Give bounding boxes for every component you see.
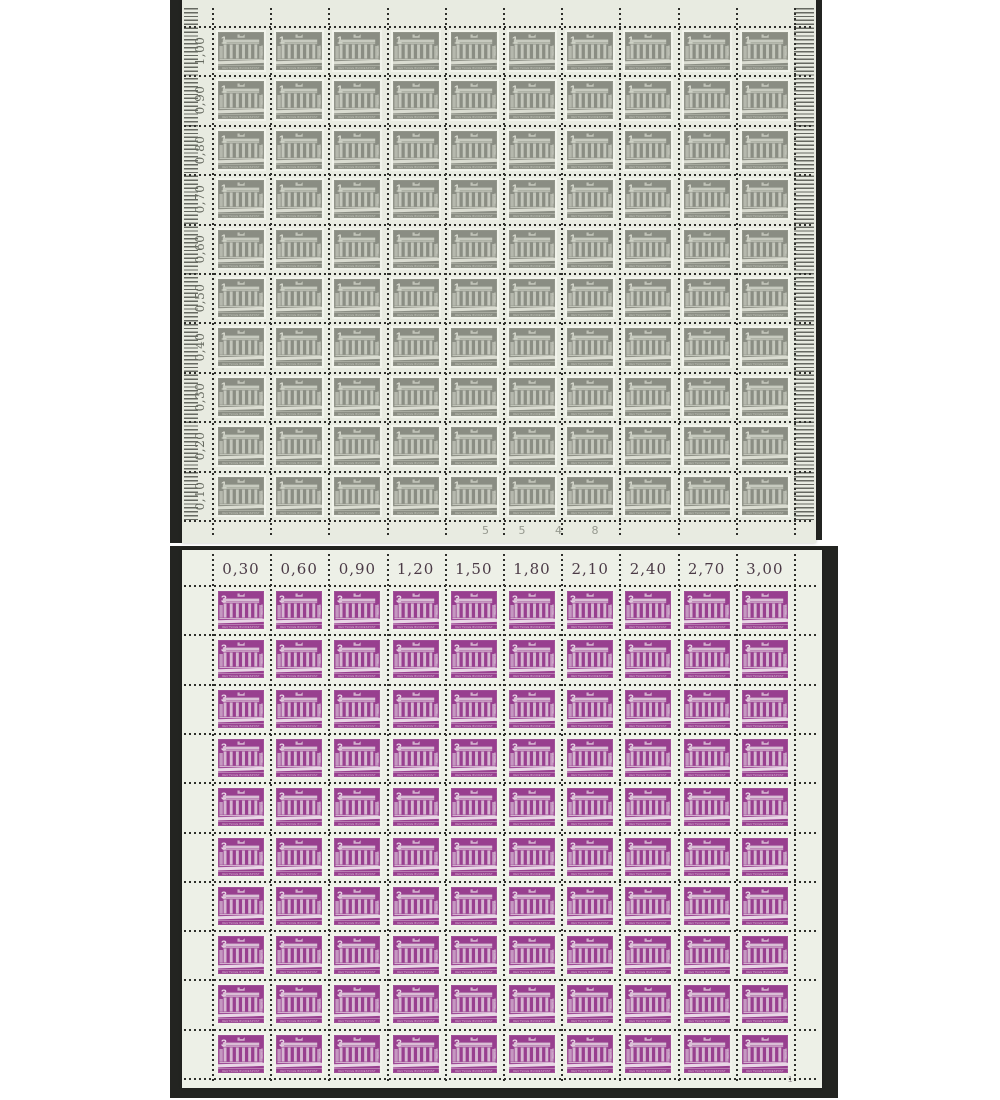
svg-text:BERLIN: BERLIN [725, 292, 729, 302]
stamp-1pf-grey: 1DEUTSCHE BUNDESPOSTBERLIN [391, 79, 441, 121]
svg-text:BERLIN: BERLIN [376, 243, 380, 253]
svg-text:DEUTSCHE BUNDESPOST: DEUTSCHE BUNDESPOST [455, 872, 493, 876]
svg-text:DEUTSCHE BUNDESPOST: DEUTSCHE BUNDESPOST [222, 1069, 260, 1073]
stamp-3pf-purple: 3DEUTSCHE BUNDESPOSTBERLIN [565, 983, 615, 1025]
svg-text:BERLIN: BERLIN [725, 441, 729, 451]
stamp-3pf-purple: 3DEUTSCHE BUNDESPOSTBERLIN [682, 638, 732, 680]
svg-text:BERLIN: BERLIN [784, 194, 788, 204]
svg-text:BERLIN: BERLIN [434, 752, 438, 762]
stamp-1pf-grey: 1DEUTSCHE BUNDESPOSTBERLIN [216, 30, 266, 72]
stamp-1pf-grey: 1DEUTSCHE BUNDESPOSTBERLIN [391, 277, 441, 319]
stamp-1pf-grey: 1DEUTSCHE BUNDESPOSTBERLIN [449, 376, 499, 418]
stamp-1pf-grey: 1DEUTSCHE BUNDESPOSTBERLIN [216, 326, 266, 368]
svg-text:BERLIN: BERLIN [725, 851, 729, 861]
svg-text:BERLIN: BERLIN [725, 45, 729, 55]
svg-text:BERLIN: BERLIN [667, 243, 671, 253]
svg-text:BERLIN: BERLIN [551, 95, 555, 105]
svg-text:DEUTSCHE BUNDESPOST: DEUTSCHE BUNDESPOST [280, 970, 318, 974]
svg-text:BERLIN: BERLIN [784, 900, 788, 910]
svg-text:BERLIN: BERLIN [376, 45, 380, 55]
svg-text:BERLIN: BERLIN [725, 703, 729, 713]
svg-text:DEUTSCHE BUNDESPOST: DEUTSCHE BUNDESPOST [280, 214, 318, 218]
svg-text:DEUTSCHE BUNDESPOST: DEUTSCHE BUNDESPOST [571, 214, 609, 218]
stamp-3pf-purple: 3DEUTSCHE BUNDESPOSTBERLIN [682, 589, 732, 631]
svg-text:BERLIN: BERLIN [609, 95, 613, 105]
svg-text:BERLIN: BERLIN [493, 900, 497, 910]
svg-text:DEUTSCHE BUNDESPOST: DEUTSCHE BUNDESPOST [397, 115, 435, 119]
svg-text:BERLIN: BERLIN [784, 654, 788, 664]
svg-text:BERLIN: BERLIN [725, 900, 729, 910]
svg-text:BERLIN: BERLIN [725, 95, 729, 105]
stamp-3pf-purple: 3DEUTSCHE BUNDESPOSTBERLIN [449, 688, 499, 730]
stamp-3pf-purple: 3DEUTSCHE BUNDESPOSTBERLIN [740, 983, 790, 1025]
stamp-3pf-purple: 3DEUTSCHE BUNDESPOSTBERLIN [682, 885, 732, 927]
svg-text:BERLIN: BERLIN [434, 342, 438, 352]
svg-text:BERLIN: BERLIN [493, 490, 497, 500]
stamp-3pf-purple: 3DEUTSCHE BUNDESPOSTBERLIN [507, 983, 557, 1025]
perforation-line [184, 421, 814, 423]
svg-text:DEUTSCHE BUNDESPOST: DEUTSCHE BUNDESPOST [513, 511, 551, 515]
svg-text:DEUTSCHE BUNDESPOST: DEUTSCHE BUNDESPOST [397, 461, 435, 465]
stamp-1pf-grey: 1DEUTSCHE BUNDESPOSTBERLIN [332, 277, 382, 319]
row-value-label: 0,70 [193, 182, 207, 216]
svg-text:DEUTSCHE BUNDESPOST: DEUTSCHE BUNDESPOST [688, 921, 726, 925]
svg-text:BERLIN: BERLIN [493, 292, 497, 302]
svg-text:DEUTSCHE BUNDESPOST: DEUTSCHE BUNDESPOST [630, 921, 668, 925]
svg-text:DEUTSCHE BUNDESPOST: DEUTSCHE BUNDESPOST [222, 970, 260, 974]
stamp-1pf-grey: 1DEUTSCHE BUNDESPOSTBERLIN [216, 129, 266, 171]
svg-text:DEUTSCHE BUNDESPOST: DEUTSCHE BUNDESPOST [571, 822, 609, 826]
stamp-1pf-grey: 1DEUTSCHE BUNDESPOSTBERLIN [565, 228, 615, 270]
svg-text:DEUTSCHE BUNDESPOST: DEUTSCHE BUNDESPOST [746, 872, 784, 876]
stamp-1pf-grey: 1DEUTSCHE BUNDESPOSTBERLIN [507, 277, 557, 319]
svg-text:BERLIN: BERLIN [493, 604, 497, 614]
svg-text:BERLIN: BERLIN [493, 703, 497, 713]
svg-text:BERLIN: BERLIN [551, 949, 555, 959]
svg-text:BERLIN: BERLIN [260, 654, 264, 664]
column-value-label: 2,10 [561, 560, 619, 578]
svg-text:DEUTSCHE BUNDESPOST: DEUTSCHE BUNDESPOST [222, 165, 260, 169]
stamp-3pf-purple: 3DEUTSCHE BUNDESPOSTBERLIN [391, 638, 441, 680]
svg-text:BERLIN: BERLIN [493, 752, 497, 762]
stamp-3pf-purple: 3DEUTSCHE BUNDESPOSTBERLIN [391, 934, 441, 976]
svg-text:BERLIN: BERLIN [667, 752, 671, 762]
svg-text:BERLIN: BERLIN [551, 292, 555, 302]
svg-text:DEUTSCHE BUNDESPOST: DEUTSCHE BUNDESPOST [455, 773, 493, 777]
svg-text:BERLIN: BERLIN [609, 604, 613, 614]
stamp-3pf-purple: 3DEUTSCHE BUNDESPOSTBERLIN [449, 786, 499, 828]
stamp-3pf-purple: 3DEUTSCHE BUNDESPOSTBERLIN [216, 638, 266, 680]
svg-text:BERLIN: BERLIN [376, 999, 380, 1009]
svg-text:BERLIN: BERLIN [609, 752, 613, 762]
stamp-3pf-purple: 3DEUTSCHE BUNDESPOSTBERLIN [507, 589, 557, 631]
svg-text:DEUTSCHE BUNDESPOST: DEUTSCHE BUNDESPOST [339, 115, 377, 119]
stamp-3pf-purple: 3DEUTSCHE BUNDESPOSTBERLIN [274, 737, 324, 779]
svg-text:DEUTSCHE BUNDESPOST: DEUTSCHE BUNDESPOST [339, 362, 377, 366]
svg-text:DEUTSCHE BUNDESPOST: DEUTSCHE BUNDESPOST [630, 214, 668, 218]
stamp-1pf-grey: 1DEUTSCHE BUNDESPOSTBERLIN [623, 425, 673, 467]
row-value-label: 0,30 [193, 380, 207, 414]
perforation-line [328, 554, 330, 1082]
svg-text:BERLIN: BERLIN [434, 441, 438, 451]
stamp-3pf-purple: 3DEUTSCHE BUNDESPOSTBERLIN [216, 934, 266, 976]
svg-text:DEUTSCHE BUNDESPOST: DEUTSCHE BUNDESPOST [630, 724, 668, 728]
stamp-1pf-grey: 1DEUTSCHE BUNDESPOSTBERLIN [274, 376, 324, 418]
svg-text:DEUTSCHE BUNDESPOST: DEUTSCHE BUNDESPOST [571, 461, 609, 465]
stamp-3pf-purple: 3DEUTSCHE BUNDESPOSTBERLIN [740, 638, 790, 680]
svg-text:DEUTSCHE BUNDESPOST: DEUTSCHE BUNDESPOST [222, 625, 260, 629]
svg-text:DEUTSCHE BUNDESPOST: DEUTSCHE BUNDESPOST [513, 970, 551, 974]
svg-text:DEUTSCHE BUNDESPOST: DEUTSCHE BUNDESPOST [571, 773, 609, 777]
stamp-1pf-grey: 1DEUTSCHE BUNDESPOSTBERLIN [623, 376, 673, 418]
stamp-3pf-purple: 3DEUTSCHE BUNDESPOSTBERLIN [507, 786, 557, 828]
stamp-1pf-grey: 1DEUTSCHE BUNDESPOSTBERLIN [623, 79, 673, 121]
stamp-1pf-grey: 1DEUTSCHE BUNDESPOSTBERLIN [682, 30, 732, 72]
stamp-3pf-purple: 3DEUTSCHE BUNDESPOSTBERLIN [623, 885, 673, 927]
stamp-3pf-purple: 3DEUTSCHE BUNDESPOSTBERLIN [391, 786, 441, 828]
stamp-3pf-purple: 3DEUTSCHE BUNDESPOSTBERLIN [449, 885, 499, 927]
stamp-1pf-grey: 1DEUTSCHE BUNDESPOSTBERLIN [740, 326, 790, 368]
stamp-1pf-grey: 1DEUTSCHE BUNDESPOSTBERLIN [216, 178, 266, 220]
svg-text:BERLIN: BERLIN [260, 999, 264, 1009]
stamp-1pf-grey: 1DEUTSCHE BUNDESPOSTBERLIN [391, 178, 441, 220]
svg-text:DEUTSCHE BUNDESPOST: DEUTSCHE BUNDESPOST [746, 970, 784, 974]
svg-text:BERLIN: BERLIN [493, 851, 497, 861]
svg-text:BERLIN: BERLIN [609, 1048, 613, 1058]
stamp-3pf-purple: 3DEUTSCHE BUNDESPOSTBERLIN [332, 737, 382, 779]
stamp-3pf-purple: 3DEUTSCHE BUNDESPOSTBERLIN [274, 983, 324, 1025]
column-value-label: 2,40 [619, 560, 677, 578]
stamp-1pf-grey: 1DEUTSCHE BUNDESPOSTBERLIN [623, 228, 673, 270]
stamp-1pf-grey: 1DEUTSCHE BUNDESPOSTBERLIN [332, 376, 382, 418]
svg-text:DEUTSCHE BUNDESPOST: DEUTSCHE BUNDESPOST [455, 362, 493, 366]
svg-text:DEUTSCHE BUNDESPOST: DEUTSCHE BUNDESPOST [339, 461, 377, 465]
svg-text:DEUTSCHE BUNDESPOST: DEUTSCHE BUNDESPOST [688, 773, 726, 777]
svg-text:DEUTSCHE BUNDESPOST: DEUTSCHE BUNDESPOST [339, 1069, 377, 1073]
stamp-3pf-purple: 3DEUTSCHE BUNDESPOSTBERLIN [449, 737, 499, 779]
svg-text:DEUTSCHE BUNDESPOST: DEUTSCHE BUNDESPOST [746, 724, 784, 728]
svg-text:BERLIN: BERLIN [434, 900, 438, 910]
svg-text:DEUTSCHE BUNDESPOST: DEUTSCHE BUNDESPOST [339, 970, 377, 974]
svg-text:BERLIN: BERLIN [667, 45, 671, 55]
stamp-3pf-purple: 3DEUTSCHE BUNDESPOSTBERLIN [565, 786, 615, 828]
stamp-3pf-purple: 3DEUTSCHE BUNDESPOSTBERLIN [274, 786, 324, 828]
stamp-3pf-purple: 3DEUTSCHE BUNDESPOSTBERLIN [740, 589, 790, 631]
svg-text:DEUTSCHE BUNDESPOST: DEUTSCHE BUNDESPOST [280, 412, 318, 416]
svg-text:DEUTSCHE BUNDESPOST: DEUTSCHE BUNDESPOST [339, 921, 377, 925]
perforation-line [387, 8, 389, 536]
svg-text:BERLIN: BERLIN [551, 441, 555, 451]
svg-text:BERLIN: BERLIN [784, 292, 788, 302]
perforation-line [184, 684, 818, 686]
svg-text:DEUTSCHE BUNDESPOST: DEUTSCHE BUNDESPOST [339, 1019, 377, 1023]
svg-text:BERLIN: BERLIN [784, 802, 788, 812]
column-value-label: 3,00 [736, 560, 794, 578]
stamp-1pf-grey: 1DEUTSCHE BUNDESPOSTBERLIN [391, 326, 441, 368]
svg-text:DEUTSCHE BUNDESPOST: DEUTSCHE BUNDESPOST [339, 313, 377, 317]
stamp-1pf-grey: 1DEUTSCHE BUNDESPOSTBERLIN [449, 277, 499, 319]
svg-text:BERLIN: BERLIN [318, 604, 322, 614]
svg-text:BERLIN: BERLIN [434, 604, 438, 614]
svg-text:DEUTSCHE BUNDESPOST: DEUTSCHE BUNDESPOST [222, 362, 260, 366]
stamp-3pf-purple: 3DEUTSCHE BUNDESPOSTBERLIN [623, 688, 673, 730]
svg-text:DEUTSCHE BUNDESPOST: DEUTSCHE BUNDESPOST [630, 511, 668, 515]
svg-text:BERLIN: BERLIN [667, 949, 671, 959]
svg-text:DEUTSCHE BUNDESPOST: DEUTSCHE BUNDESPOST [688, 625, 726, 629]
perforation-line [184, 125, 814, 127]
svg-text:DEUTSCHE BUNDESPOST: DEUTSCHE BUNDESPOST [222, 511, 260, 515]
perforation-line [184, 881, 818, 883]
svg-text:DEUTSCHE BUNDESPOST: DEUTSCHE BUNDESPOST [397, 625, 435, 629]
svg-text:BERLIN: BERLIN [667, 292, 671, 302]
svg-text:BERLIN: BERLIN [493, 1048, 497, 1058]
svg-text:BERLIN: BERLIN [609, 441, 613, 451]
stamp-1pf-grey: 1DEUTSCHE BUNDESPOSTBERLIN [507, 178, 557, 220]
stamp-3pf-purple: 3DEUTSCHE BUNDESPOSTBERLIN [565, 688, 615, 730]
svg-text:BERLIN: BERLIN [376, 441, 380, 451]
svg-text:BERLIN: BERLIN [725, 1048, 729, 1058]
svg-text:DEUTSCHE BUNDESPOST: DEUTSCHE BUNDESPOST [746, 115, 784, 119]
stamp-1pf-grey: 1DEUTSCHE BUNDESPOSTBERLIN [449, 79, 499, 121]
perforation-line [184, 372, 814, 374]
stamp-3pf-purple: 3DEUTSCHE BUNDESPOSTBERLIN [565, 737, 615, 779]
stamp-3pf-purple: 3DEUTSCHE BUNDESPOSTBERLIN [216, 688, 266, 730]
perforation-line [503, 554, 505, 1082]
svg-text:DEUTSCHE BUNDESPOST: DEUTSCHE BUNDESPOST [746, 625, 784, 629]
stamp-3pf-purple: 3DEUTSCHE BUNDESPOSTBERLIN [216, 885, 266, 927]
svg-text:DEUTSCHE BUNDESPOST: DEUTSCHE BUNDESPOST [222, 66, 260, 70]
svg-text:DEUTSCHE BUNDESPOST: DEUTSCHE BUNDESPOST [513, 461, 551, 465]
svg-text:BERLIN: BERLIN [318, 1048, 322, 1058]
svg-text:BERLIN: BERLIN [493, 243, 497, 253]
stamp-3pf-purple: 3DEUTSCHE BUNDESPOSTBERLIN [449, 1033, 499, 1075]
svg-text:DEUTSCHE BUNDESPOST: DEUTSCHE BUNDESPOST [571, 625, 609, 629]
column-value-label: 2,70 [678, 560, 736, 578]
svg-text:DEUTSCHE BUNDESPOST: DEUTSCHE BUNDESPOST [397, 362, 435, 366]
svg-text:BERLIN: BERLIN [609, 654, 613, 664]
svg-text:BERLIN: BERLIN [318, 999, 322, 1009]
stamp-1pf-grey: 1DEUTSCHE BUNDESPOSTBERLIN [274, 228, 324, 270]
stamp-1pf-grey: 1DEUTSCHE BUNDESPOSTBERLIN [274, 277, 324, 319]
svg-text:BERLIN: BERLIN [609, 703, 613, 713]
svg-text:BERLIN: BERLIN [434, 851, 438, 861]
row-value-label: 0,90 [193, 83, 207, 117]
stamp-1pf-grey: 1DEUTSCHE BUNDESPOSTBERLIN [682, 129, 732, 171]
stamp-1pf-grey: 1DEUTSCHE BUNDESPOSTBERLIN [507, 79, 557, 121]
svg-text:DEUTSCHE BUNDESPOST: DEUTSCHE BUNDESPOST [688, 724, 726, 728]
stamp-1pf-grey: 1DEUTSCHE BUNDESPOSTBERLIN [623, 129, 673, 171]
svg-text:BERLIN: BERLIN [434, 391, 438, 401]
svg-text:BERLIN: BERLIN [318, 342, 322, 352]
stamp-1pf-grey: 1DEUTSCHE BUNDESPOSTBERLIN [682, 425, 732, 467]
svg-text:BERLIN: BERLIN [318, 45, 322, 55]
stamp-3pf-purple: 3DEUTSCHE BUNDESPOSTBERLIN [740, 934, 790, 976]
stamp-3pf-purple: 3DEUTSCHE BUNDESPOSTBERLIN [391, 1033, 441, 1075]
svg-text:BERLIN: BERLIN [318, 144, 322, 154]
svg-text:BERLIN: BERLIN [551, 144, 555, 154]
stamp-1pf-grey: 1DEUTSCHE BUNDESPOSTBERLIN [449, 228, 499, 270]
stamp-1pf-grey: 1DEUTSCHE BUNDESPOSTBERLIN [274, 326, 324, 368]
svg-text:BERLIN: BERLIN [725, 654, 729, 664]
sheet-right-edge [822, 546, 838, 1098]
svg-text:DEUTSCHE BUNDESPOST: DEUTSCHE BUNDESPOST [222, 214, 260, 218]
perforation-line [445, 554, 447, 1082]
svg-text:DEUTSCHE BUNDESPOST: DEUTSCHE BUNDESPOST [571, 362, 609, 366]
stamp-3pf-purple: 3DEUTSCHE BUNDESPOSTBERLIN [391, 983, 441, 1025]
svg-text:DEUTSCHE BUNDESPOST: DEUTSCHE BUNDESPOST [513, 773, 551, 777]
svg-text:BERLIN: BERLIN [551, 243, 555, 253]
stamp-1pf-grey: 1DEUTSCHE BUNDESPOSTBERLIN [449, 30, 499, 72]
perforation-line [184, 520, 814, 522]
svg-text:BERLIN: BERLIN [609, 949, 613, 959]
svg-text:BERLIN: BERLIN [609, 194, 613, 204]
svg-text:DEUTSCHE BUNDESPOST: DEUTSCHE BUNDESPOST [455, 264, 493, 268]
stamp-3pf-purple: 3DEUTSCHE BUNDESPOSTBERLIN [274, 1033, 324, 1075]
svg-text:BERLIN: BERLIN [609, 292, 613, 302]
svg-text:BERLIN: BERLIN [493, 45, 497, 55]
svg-text:BERLIN: BERLIN [376, 490, 380, 500]
svg-text:DEUTSCHE BUNDESPOST: DEUTSCHE BUNDESPOST [688, 115, 726, 119]
svg-text:DEUTSCHE BUNDESPOST: DEUTSCHE BUNDESPOST [222, 921, 260, 925]
svg-text:DEUTSCHE BUNDESPOST: DEUTSCHE BUNDESPOST [513, 313, 551, 317]
svg-text:BERLIN: BERLIN [725, 752, 729, 762]
svg-text:DEUTSCHE BUNDESPOST: DEUTSCHE BUNDESPOST [746, 362, 784, 366]
stamp-3pf-purple: 3DEUTSCHE BUNDESPOSTBERLIN [274, 934, 324, 976]
row-value-label: 0,40 [193, 330, 207, 364]
stamp-3pf-purple: 3DEUTSCHE BUNDESPOSTBERLIN [274, 836, 324, 878]
stamp-1pf-grey: 1DEUTSCHE BUNDESPOSTBERLIN [449, 129, 499, 171]
svg-text:BERLIN: BERLIN [493, 802, 497, 812]
svg-text:DEUTSCHE BUNDESPOST: DEUTSCHE BUNDESPOST [222, 115, 260, 119]
svg-text:BERLIN: BERLIN [318, 654, 322, 664]
stamp-3pf-purple: 3DEUTSCHE BUNDESPOSTBERLIN [332, 589, 382, 631]
stamp-3pf-purple: 3DEUTSCHE BUNDESPOSTBERLIN [623, 1033, 673, 1075]
svg-text:DEUTSCHE BUNDESPOST: DEUTSCHE BUNDESPOST [339, 773, 377, 777]
stamp-3pf-purple: 3DEUTSCHE BUNDESPOSTBERLIN [623, 934, 673, 976]
svg-text:BERLIN: BERLIN [784, 490, 788, 500]
stamp-3pf-purple: 3DEUTSCHE BUNDESPOSTBERLIN [274, 638, 324, 680]
svg-text:DEUTSCHE BUNDESPOST: DEUTSCHE BUNDESPOST [746, 511, 784, 515]
row-value-label: 0,20 [193, 429, 207, 463]
svg-text:BERLIN: BERLIN [376, 802, 380, 812]
perforation-line [184, 1029, 818, 1031]
svg-text:BERLIN: BERLIN [434, 802, 438, 812]
stamp-3pf-purple: 3DEUTSCHE BUNDESPOSTBERLIN [274, 885, 324, 927]
svg-text:BERLIN: BERLIN [551, 45, 555, 55]
svg-text:BERLIN: BERLIN [434, 243, 438, 253]
svg-text:BERLIN: BERLIN [376, 1048, 380, 1058]
svg-text:DEUTSCHE BUNDESPOST: DEUTSCHE BUNDESPOST [688, 1019, 726, 1023]
svg-text:DEUTSCHE BUNDESPOST: DEUTSCHE BUNDESPOST [280, 1019, 318, 1023]
svg-text:BERLIN: BERLIN [551, 342, 555, 352]
svg-text:DEUTSCHE BUNDESPOST: DEUTSCHE BUNDESPOST [455, 165, 493, 169]
svg-text:BERLIN: BERLIN [551, 654, 555, 664]
svg-text:BERLIN: BERLIN [551, 194, 555, 204]
svg-text:DEUTSCHE BUNDESPOST: DEUTSCHE BUNDESPOST [688, 66, 726, 70]
svg-text:BERLIN: BERLIN [434, 292, 438, 302]
svg-text:DEUTSCHE BUNDESPOST: DEUTSCHE BUNDESPOST [746, 822, 784, 826]
svg-text:BERLIN: BERLIN [493, 391, 497, 401]
svg-text:DEUTSCHE BUNDESPOST: DEUTSCHE BUNDESPOST [688, 313, 726, 317]
stamp-1pf-grey: 1DEUTSCHE BUNDESPOSTBERLIN [565, 129, 615, 171]
stamp-3pf-purple: 3DEUTSCHE BUNDESPOSTBERLIN [740, 836, 790, 878]
perforation-line [184, 979, 818, 981]
svg-text:BERLIN: BERLIN [493, 999, 497, 1009]
svg-text:BERLIN: BERLIN [609, 342, 613, 352]
svg-text:BERLIN: BERLIN [318, 752, 322, 762]
svg-text:DEUTSCHE BUNDESPOST: DEUTSCHE BUNDESPOST [397, 921, 435, 925]
svg-text:DEUTSCHE BUNDESPOST: DEUTSCHE BUNDESPOST [339, 674, 377, 678]
svg-text:DEUTSCHE BUNDESPOST: DEUTSCHE BUNDESPOST [513, 674, 551, 678]
perforation-line [678, 554, 680, 1082]
svg-text:BERLIN: BERLIN [667, 654, 671, 664]
stamp-1pf-grey: 1DEUTSCHE BUNDESPOSTBERLIN [216, 475, 266, 517]
svg-text:DEUTSCHE BUNDESPOST: DEUTSCHE BUNDESPOST [222, 773, 260, 777]
perforation-line [184, 26, 814, 28]
stamp-1pf-grey: 1DEUTSCHE BUNDESPOSTBERLIN [623, 475, 673, 517]
perforation-line [619, 8, 621, 536]
svg-text:BERLIN: BERLIN [434, 45, 438, 55]
svg-text:BERLIN: BERLIN [784, 391, 788, 401]
stamp-1pf-grey: 1DEUTSCHE BUNDESPOSTBERLIN [565, 475, 615, 517]
perforation-line [184, 1078, 818, 1080]
stamp-1pf-grey: 1DEUTSCHE BUNDESPOSTBERLIN [274, 129, 324, 171]
stamp-1pf-grey: 1DEUTSCHE BUNDESPOSTBERLIN [565, 178, 615, 220]
svg-text:BERLIN: BERLIN [318, 802, 322, 812]
stamp-1pf-grey: 1DEUTSCHE BUNDESPOSTBERLIN [449, 475, 499, 517]
svg-text:DEUTSCHE BUNDESPOST: DEUTSCHE BUNDESPOST [688, 362, 726, 366]
svg-text:BERLIN: BERLIN [434, 703, 438, 713]
stamp-3pf-purple: 3DEUTSCHE BUNDESPOSTBERLIN [391, 688, 441, 730]
svg-text:DEUTSCHE BUNDESPOST: DEUTSCHE BUNDESPOST [630, 625, 668, 629]
svg-text:DEUTSCHE BUNDESPOST: DEUTSCHE BUNDESPOST [280, 362, 318, 366]
svg-text:BERLIN: BERLIN [667, 144, 671, 154]
stamp-1pf-grey: 1DEUTSCHE BUNDESPOSTBERLIN [332, 129, 382, 171]
stamp-1pf-grey: 1DEUTSCHE BUNDESPOSTBERLIN [391, 228, 441, 270]
svg-text:DEUTSCHE BUNDESPOST: DEUTSCHE BUNDESPOST [513, 1069, 551, 1073]
stamp-sheet-3pf: 3DEUTSCHE BUNDESPOSTBERLIN3DEUTSCHE BUND… [182, 550, 822, 1088]
stamp-1pf-grey: 1DEUTSCHE BUNDESPOSTBERLIN [216, 376, 266, 418]
svg-text:BERLIN: BERLIN [493, 441, 497, 451]
stamp-3pf-purple: 3DEUTSCHE BUNDESPOSTBERLIN [274, 688, 324, 730]
svg-text:BERLIN: BERLIN [725, 391, 729, 401]
svg-text:BERLIN: BERLIN [376, 752, 380, 762]
svg-text:BERLIN: BERLIN [784, 45, 788, 55]
svg-text:DEUTSCHE BUNDESPOST: DEUTSCHE BUNDESPOST [455, 674, 493, 678]
svg-text:DEUTSCHE BUNDESPOST: DEUTSCHE BUNDESPOST [630, 1069, 668, 1073]
stamp-3pf-purple: 3DEUTSCHE BUNDESPOSTBERLIN [332, 836, 382, 878]
svg-text:BERLIN: BERLIN [260, 194, 264, 204]
svg-text:DEUTSCHE BUNDESPOST: DEUTSCHE BUNDESPOST [746, 461, 784, 465]
svg-text:BERLIN: BERLIN [609, 851, 613, 861]
svg-text:BERLIN: BERLIN [784, 243, 788, 253]
stamp-1pf-grey: 1DEUTSCHE BUNDESPOSTBERLIN [507, 475, 557, 517]
svg-text:DEUTSCHE BUNDESPOST: DEUTSCHE BUNDESPOST [280, 461, 318, 465]
stamp-1pf-grey: 1DEUTSCHE BUNDESPOSTBERLIN [332, 228, 382, 270]
svg-text:DEUTSCHE BUNDESPOST: DEUTSCHE BUNDESPOST [222, 461, 260, 465]
svg-text:DEUTSCHE BUNDESPOST: DEUTSCHE BUNDESPOST [222, 872, 260, 876]
svg-text:BERLIN: BERLIN [376, 342, 380, 352]
stamp-1pf-grey: 1DEUTSCHE BUNDESPOSTBERLIN [565, 376, 615, 418]
svg-text:DEUTSCHE BUNDESPOST: DEUTSCHE BUNDESPOST [513, 165, 551, 169]
stamp-3pf-purple: 3DEUTSCHE BUNDESPOSTBERLIN [507, 638, 557, 680]
svg-text:DEUTSCHE BUNDESPOST: DEUTSCHE BUNDESPOST [571, 313, 609, 317]
svg-text:BERLIN: BERLIN [260, 292, 264, 302]
svg-text:DEUTSCHE BUNDESPOST: DEUTSCHE BUNDESPOST [513, 872, 551, 876]
svg-text:DEUTSCHE BUNDESPOST: DEUTSCHE BUNDESPOST [571, 724, 609, 728]
svg-text:DEUTSCHE BUNDESPOST: DEUTSCHE BUNDESPOST [630, 165, 668, 169]
svg-text:DEUTSCHE BUNDESPOST: DEUTSCHE BUNDESPOST [630, 970, 668, 974]
